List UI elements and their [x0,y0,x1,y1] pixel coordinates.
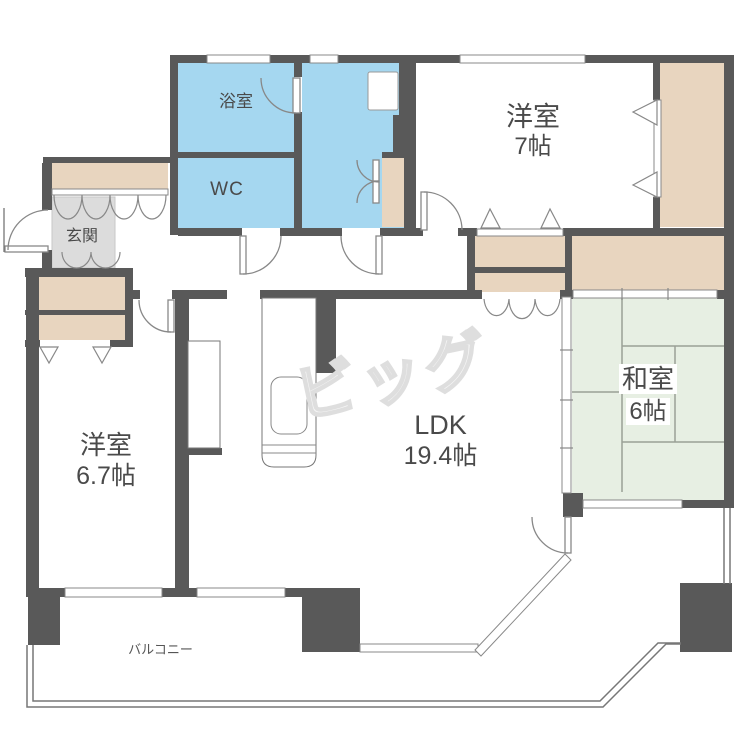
washroom-door-arc [341,236,379,274]
western7-door-leaf [421,192,427,230]
western67-window [65,588,162,597]
linen-door-leaf-bottom [373,181,379,203]
ldk-japanese-fusuma [562,297,571,493]
western7-closet-east [660,62,724,227]
western67-closet [32,315,125,340]
western67-door-arc [139,300,171,332]
entrance-closet-upper [32,277,125,310]
east-closet-triangle-1 [633,100,657,125]
japanese-room-window [583,500,682,508]
bath-label: 浴室 [196,92,276,112]
japanese-room-closet [572,233,724,290]
western67-closet-triangle-2 [93,347,111,363]
balcony-door-leaf [565,517,571,553]
western7-closet-south [475,235,565,267]
kitchen-counter [188,341,220,448]
shoe-cabinet-opening [52,189,168,195]
western67-label: 洋室 6.7帖 [36,430,176,491]
bath-door-leaf [293,78,300,113]
western67-door-leaf [168,300,174,332]
ldk-diagonal-window [475,554,571,656]
washroom-door-leaf [376,236,382,274]
balcony-label: バルコニー [98,642,223,658]
entrance-label: 玄関 [44,227,120,246]
linen-closet [382,158,404,227]
western7-window [460,55,585,63]
western7-closet-triangle-1 [481,209,500,228]
bath-window [207,55,270,63]
ldk-balcony-window [360,644,478,652]
wc-door-arc [243,236,281,274]
washroom-window [310,55,338,63]
balcony-railing [27,508,730,707]
wc-door-leaf [240,236,246,274]
japanese-room-label: 和室 6帖 [590,364,706,427]
western7-label: 洋室 7帖 [463,101,603,162]
western7-closet-opening [477,229,563,236]
western7-closet-triangle-2 [541,209,560,228]
east-closet-triangle-2 [633,172,657,197]
western67-closet-triangle-1 [40,347,58,363]
floor-plan: 浴室 WC 玄関 洋室 7帖 洋室 6.7帖 LDK 19.4帖 和室 6帖 バ… [0,0,750,750]
balcony-door-arc [532,517,568,553]
ldk-west-window [197,588,285,597]
western7-door-arc [424,192,462,230]
washing-machine-pan [368,72,398,110]
ldk-label: LDK 19.4帖 [368,409,513,471]
linen-door-leaf-top [373,160,379,182]
ldk-closet [475,273,565,292]
japanese-closet-fusuma [573,290,717,298]
wc-label: WC [187,179,267,202]
entrance-door-leaf [5,246,48,252]
entrance-door-arc [8,210,48,250]
shoe-cabinet [52,163,168,190]
